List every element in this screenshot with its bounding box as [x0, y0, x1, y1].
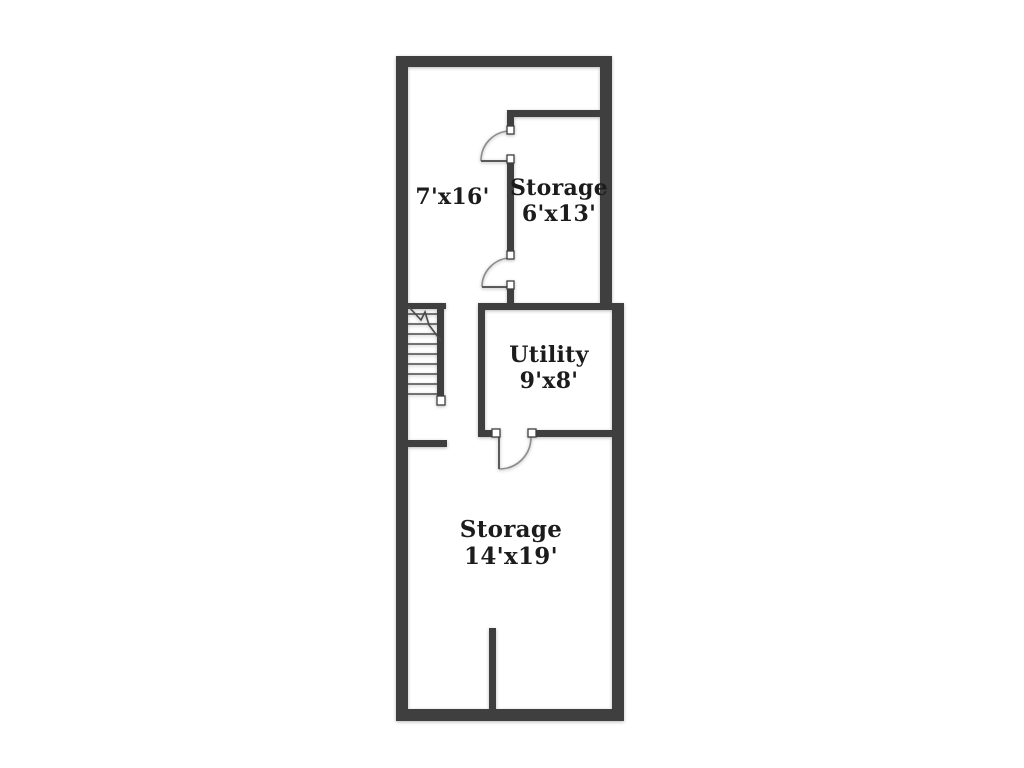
door-arc	[499, 437, 531, 469]
outer-wall-top	[396, 56, 612, 67]
outer-wall-left	[396, 56, 408, 721]
stair-top-wall	[408, 303, 446, 309]
room-label-hall: 7'x16'	[390, 184, 515, 210]
room-dims: 6'x13'	[507, 201, 611, 227]
outer-wall-bottom	[396, 709, 624, 721]
door-hinge	[528, 429, 536, 437]
storage-upper-top-wall	[507, 110, 601, 117]
door-hinge	[507, 281, 514, 289]
room-label-utility: Utility 9'x8'	[486, 342, 612, 394]
door-hinge	[507, 126, 514, 134]
room-label-storage-lower: Storage 14'x19'	[408, 516, 614, 570]
room-name: Storage	[507, 175, 611, 201]
room-dims: 14'x19'	[408, 543, 614, 570]
door-hinge	[507, 155, 514, 163]
stair-wall-end-post	[437, 396, 445, 405]
floor-plan: 7'x16' Storage 6'x13' Utility 9'x8' Stor…	[0, 0, 1024, 768]
door-hinge	[507, 251, 514, 259]
utility-bottom-wall-right	[533, 430, 613, 437]
utility-left-wall	[478, 310, 485, 437]
corridor-wall-stub	[396, 440, 447, 447]
stair-right-wall	[437, 309, 444, 397]
door-hinge	[492, 429, 500, 437]
room-dims: 9'x8'	[486, 368, 612, 394]
room-label-storage-upper: Storage 6'x13'	[507, 175, 611, 227]
room-name: Storage	[408, 516, 614, 543]
room-dims: 7'x16'	[390, 184, 515, 210]
outer-wall-right-lower	[612, 303, 624, 721]
utility-top-wall	[478, 303, 613, 310]
storage-lower-wall-stub	[489, 628, 496, 709]
room-name: Utility	[486, 342, 612, 368]
